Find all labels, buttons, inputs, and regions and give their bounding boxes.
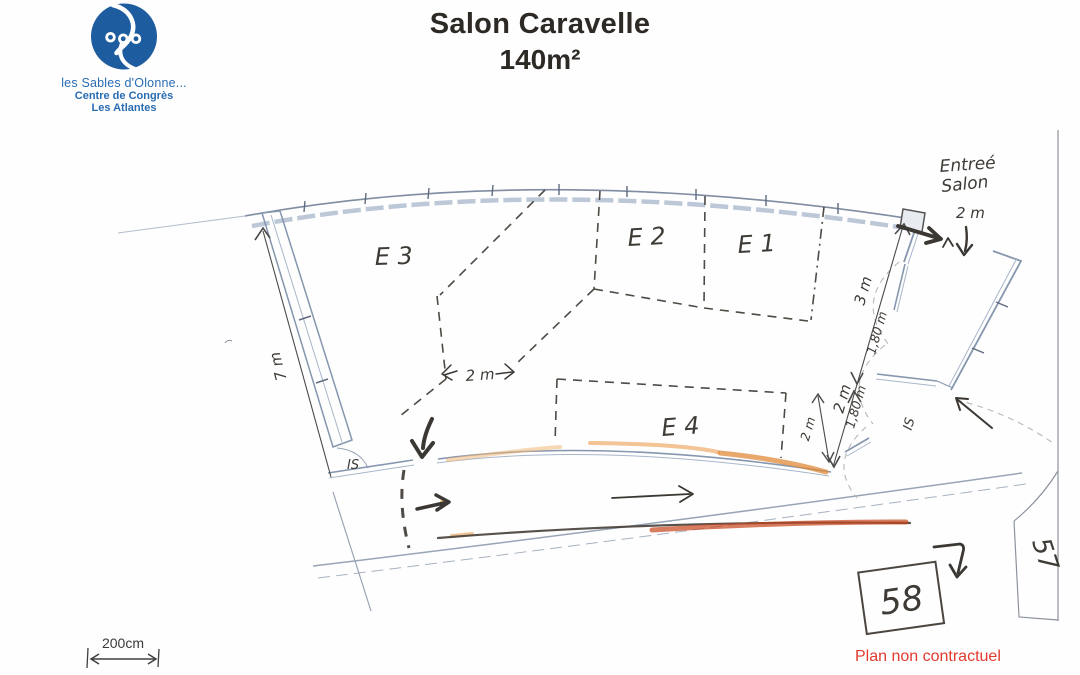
exit-label-right: IS (901, 416, 919, 432)
center-gap-dimension: 2 m (465, 365, 495, 385)
zone-label-e3: E 3 (374, 242, 413, 271)
entrance-width-label: 2 m (956, 204, 985, 222)
floor-plan-drawing: 58 E 3 E 2 E 1 E 4 Entreé Salon 2 m 2 m … (0, 0, 1080, 675)
zone-label-e1: E 1 (737, 229, 776, 259)
right-dimension-bottom: 2 m (797, 415, 818, 442)
room-58-box: 58 (858, 562, 944, 634)
entrance-label-line2: Salon (940, 172, 989, 197)
zone-label-e4: E 4 (660, 411, 700, 442)
walls (118, 130, 1058, 621)
door-width-label-1: 1,80 m (863, 310, 890, 356)
left-wall-dimension: 7 m (266, 350, 291, 383)
scale-bar: 200cm (87, 635, 159, 668)
scale-bar-label: 200cm (102, 635, 144, 651)
scanned-floor-plan-page: les Sables d'Olonne... Centre de Congrès… (0, 0, 1080, 675)
exit-label-left: IS (347, 458, 359, 473)
room-number-58: 58 (877, 578, 925, 624)
handwritten-labels: E 3 E 2 E 1 E 4 Entreé Salon 2 m 2 m 7 m… (266, 153, 1064, 575)
door-swing-arcs (844, 262, 1053, 498)
zone-label-e2: E 2 (627, 222, 666, 252)
right-dimension-top: 3 m (851, 274, 876, 307)
